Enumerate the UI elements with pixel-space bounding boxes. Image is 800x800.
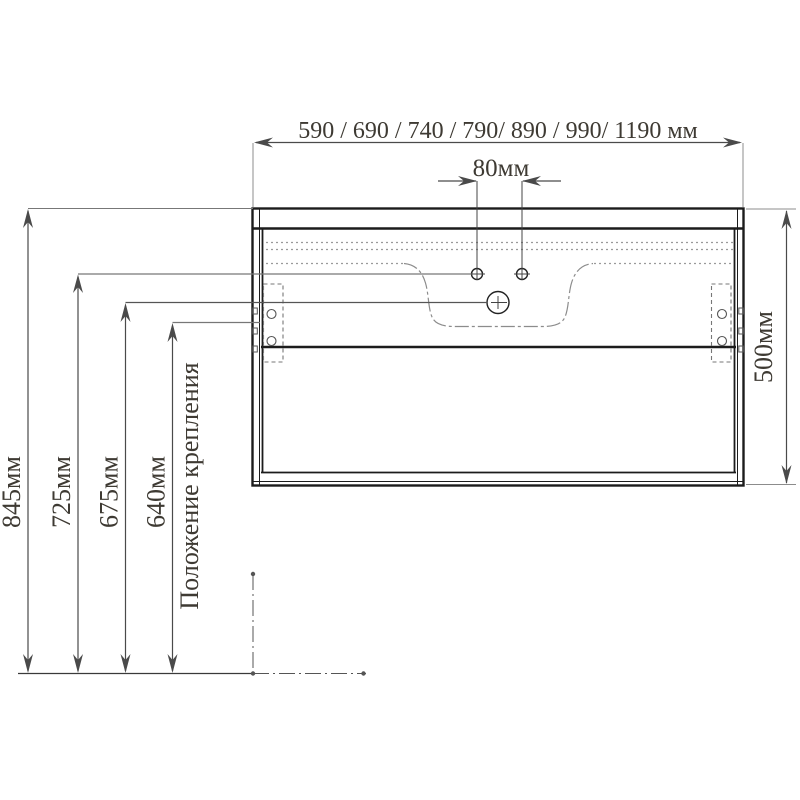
floor-height-label-845: 845мм xyxy=(0,456,26,528)
mounting-bracket-left xyxy=(264,284,284,362)
height-dimension: 500мм xyxy=(746,209,796,485)
floor-height-label-675: 675мм xyxy=(95,456,124,528)
bracket-left-hole-bottom xyxy=(267,337,276,346)
sink-outline xyxy=(404,264,593,327)
floor-height-845: 845мм xyxy=(0,209,253,674)
floor-height-label-725: 725мм xyxy=(47,456,76,528)
hole-spacing-label: 80мм xyxy=(473,155,530,182)
bracket-right-hole-bottom xyxy=(718,337,727,346)
vanity-cabinet-drawing: 590 / 690 / 740 / 790/ 890 / 990/ 1190 м… xyxy=(0,0,800,800)
axis-dot xyxy=(361,671,365,675)
bracket-left-hole-top xyxy=(267,310,276,319)
side-clips xyxy=(253,308,744,352)
bracket-right-outline xyxy=(712,284,732,362)
bracket-right-hole-top xyxy=(718,310,727,319)
axis-dot xyxy=(251,572,255,576)
axis-dot xyxy=(251,671,255,675)
mounting-position-label: Положение крепления xyxy=(175,362,204,609)
floor-height-640: 640мм Положение крепления xyxy=(142,323,261,674)
cabinet xyxy=(253,209,744,486)
hole-spacing-dimension: 80мм xyxy=(438,155,561,280)
bracket-left-outline xyxy=(264,284,284,362)
drain-hole xyxy=(487,292,509,314)
width-options-label: 590 / 690 / 740 / 790/ 890 / 990/ 1190 м… xyxy=(298,118,698,144)
height-label: 500мм xyxy=(749,311,778,383)
faucet-holes xyxy=(469,269,530,280)
technical-drawing-page: 590 / 690 / 740 / 790/ 890 / 990/ 1190 м… xyxy=(0,0,800,800)
floor-height-dimensions: 845мм 725мм 675мм 640мм Положение крепле… xyxy=(0,209,487,674)
mounting-bracket-right xyxy=(712,284,732,362)
floor-height-label-640: 640мм xyxy=(142,456,171,528)
